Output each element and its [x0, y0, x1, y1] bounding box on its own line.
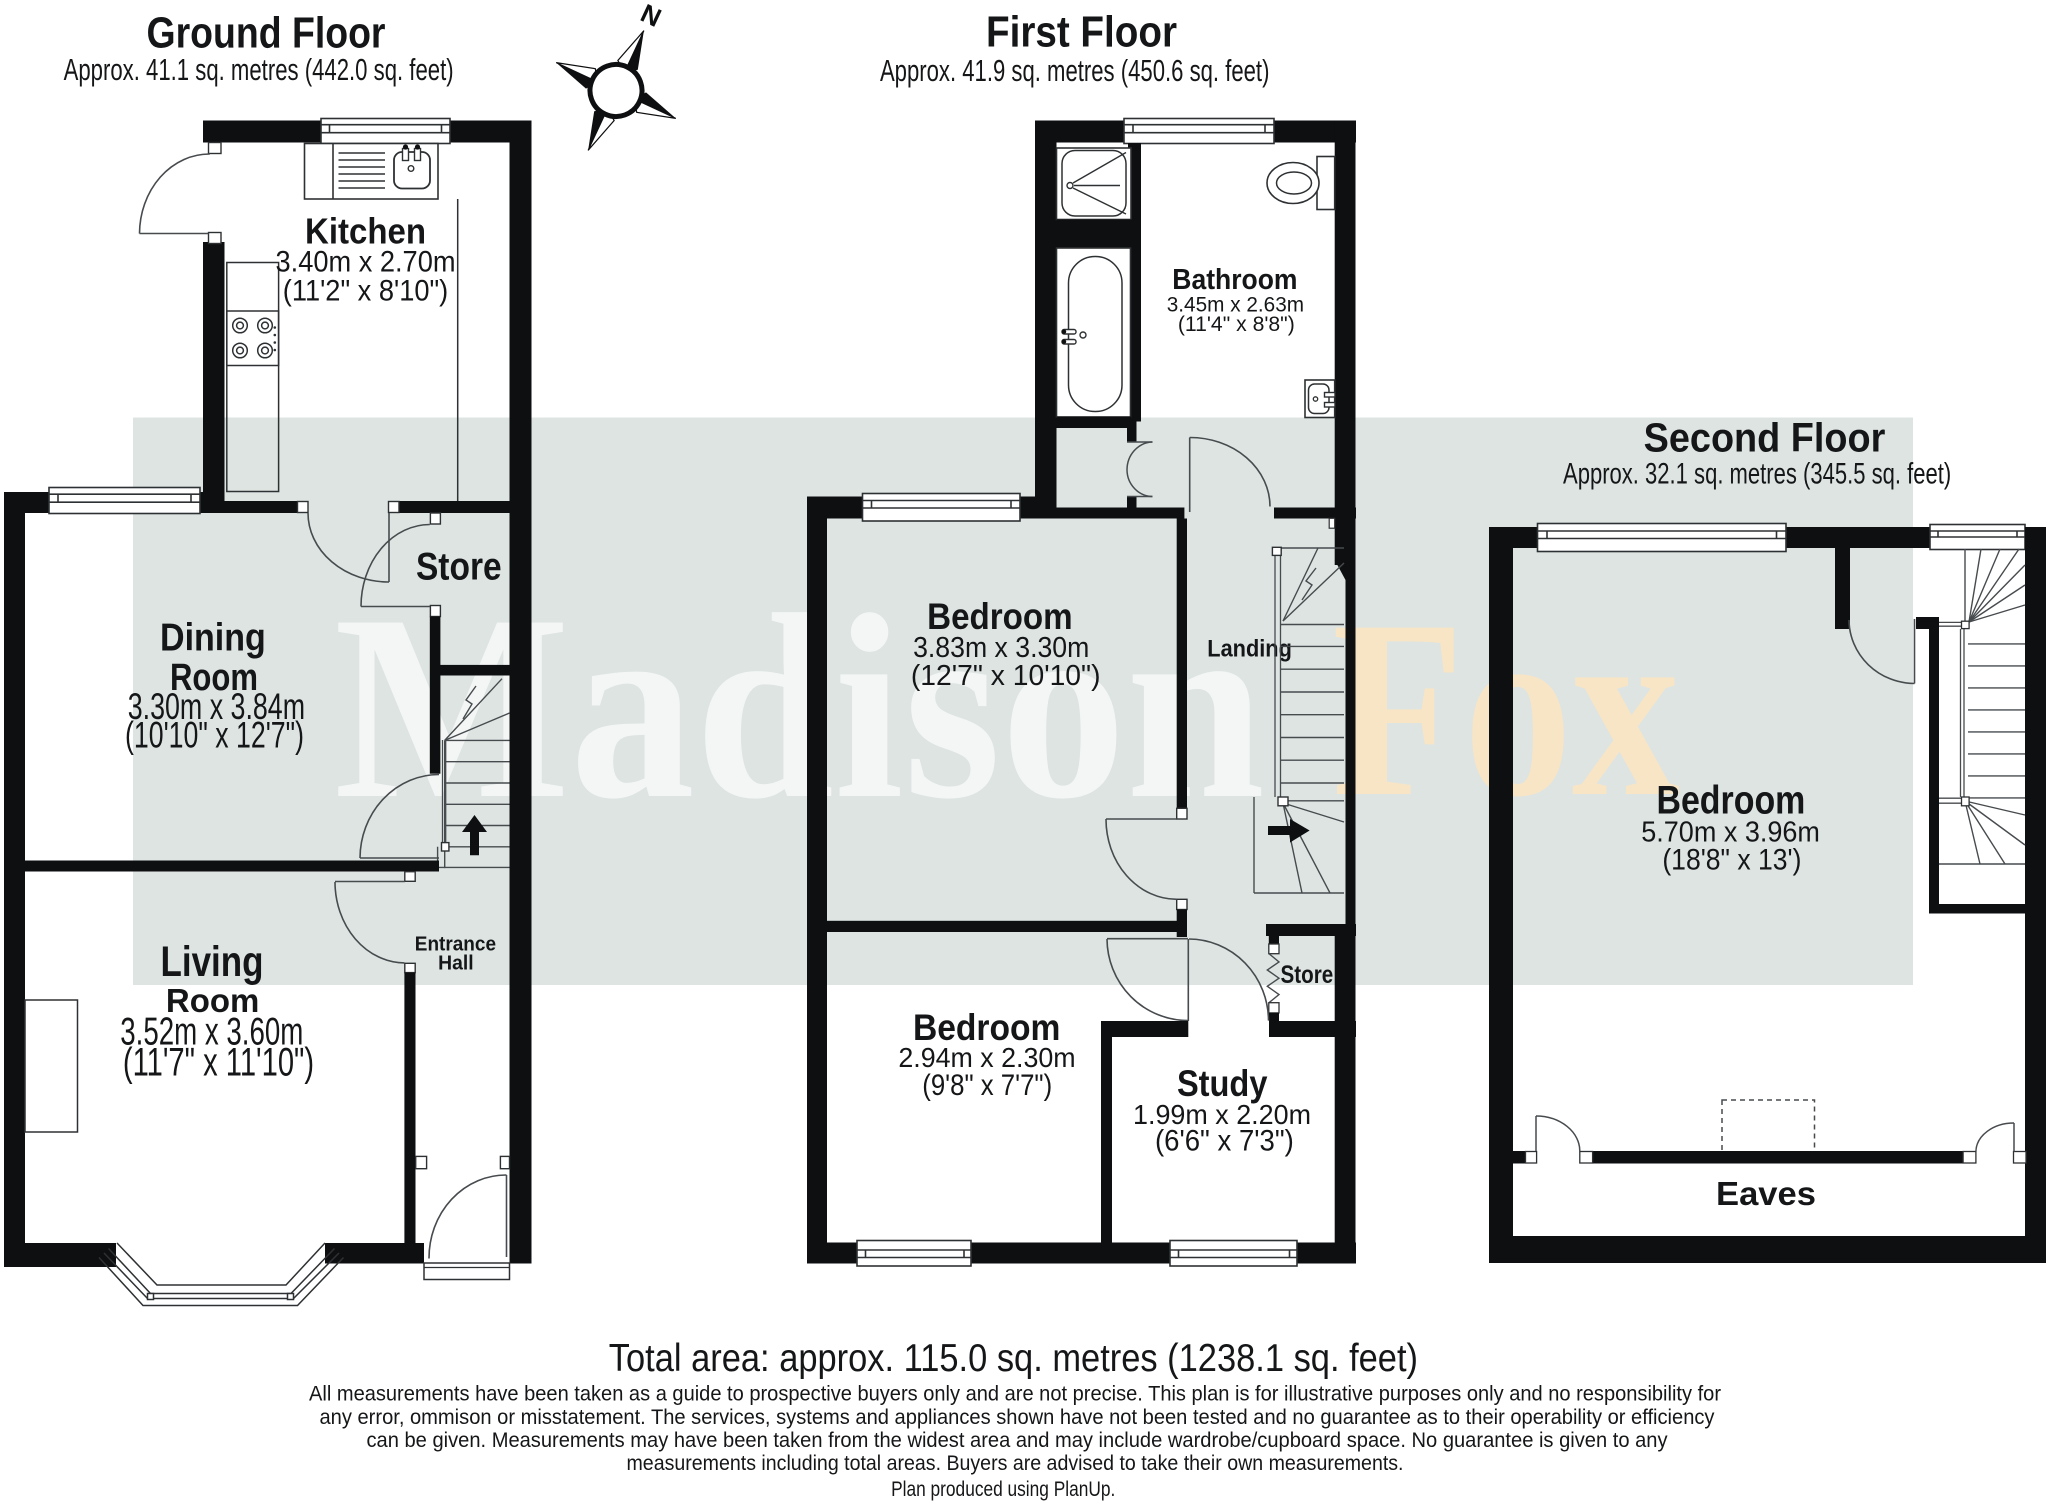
svg-text:3.83m x 3.30m: 3.83m x 3.30m	[913, 631, 1089, 663]
svg-text:Hall: Hall	[438, 953, 474, 975]
svg-text:Store: Store	[1281, 961, 1334, 989]
svg-text:Second Floor: Second Floor	[1644, 415, 1886, 461]
svg-text:All measurements have been tak: All measurements have been taken as a gu…	[309, 1383, 1721, 1406]
svg-text:Approx. 32.1 sq. metres (345.5: Approx. 32.1 sq. metres (345.5 sq. feet)	[1563, 457, 1951, 490]
svg-text:Dining: Dining	[160, 616, 266, 659]
svg-text:Plan produced using PlanUp.: Plan produced using PlanUp.	[891, 1478, 1115, 1501]
svg-text:(11'4" x 8'8"): (11'4" x 8'8")	[1178, 312, 1295, 336]
svg-text:3.40m x 2.70m: 3.40m x 2.70m	[276, 245, 456, 278]
svg-text:(10'10" x 12'7"): (10'10" x 12'7")	[125, 715, 304, 756]
svg-text:(12'7" x 10'10"): (12'7" x 10'10")	[911, 660, 1101, 692]
svg-text:Landing: Landing	[1207, 635, 1292, 662]
svg-text:any error, ommison or misstate: any error, ommison or misstatement. The …	[320, 1406, 1715, 1429]
svg-text:Bathroom: Bathroom	[1172, 264, 1297, 296]
svg-text:Approx. 41.9 sq. metres (450.6: Approx. 41.9 sq. metres (450.6 sq. feet)	[880, 54, 1270, 88]
svg-text:Approx. 41.1 sq. metres (442.0: Approx. 41.1 sq. metres (442.0 sq. feet)	[64, 53, 454, 87]
svg-text:(9'8" x 7'7"): (9'8" x 7'7")	[922, 1069, 1052, 1102]
svg-text:Ground Floor: Ground Floor	[147, 8, 386, 57]
svg-text:Living: Living	[161, 938, 264, 985]
svg-text:(11'7" x 11'10"): (11'7" x 11'10")	[123, 1041, 314, 1085]
svg-text:Store: Store	[416, 545, 502, 588]
svg-text:Total area: approx. 115.0 sq.: Total area: approx. 115.0 sq. metres (12…	[609, 1336, 1418, 1380]
svg-text:(11'2" x 8'10"): (11'2" x 8'10")	[283, 275, 449, 308]
svg-text:(18'8" x 13'): (18'8" x 13')	[1662, 844, 1801, 877]
svg-text:(6'6" x 7'3"): (6'6" x 7'3")	[1155, 1125, 1294, 1158]
svg-text:First Floor: First Floor	[986, 9, 1177, 57]
svg-text:Eaves: Eaves	[1716, 1176, 1816, 1213]
svg-text:Madison: Madison	[334, 561, 1265, 854]
svg-text:can be given. Measurements may: can be given. Measurements may have been…	[367, 1429, 1668, 1452]
svg-text:measurements including total a: measurements including total areas. Buye…	[627, 1452, 1404, 1475]
